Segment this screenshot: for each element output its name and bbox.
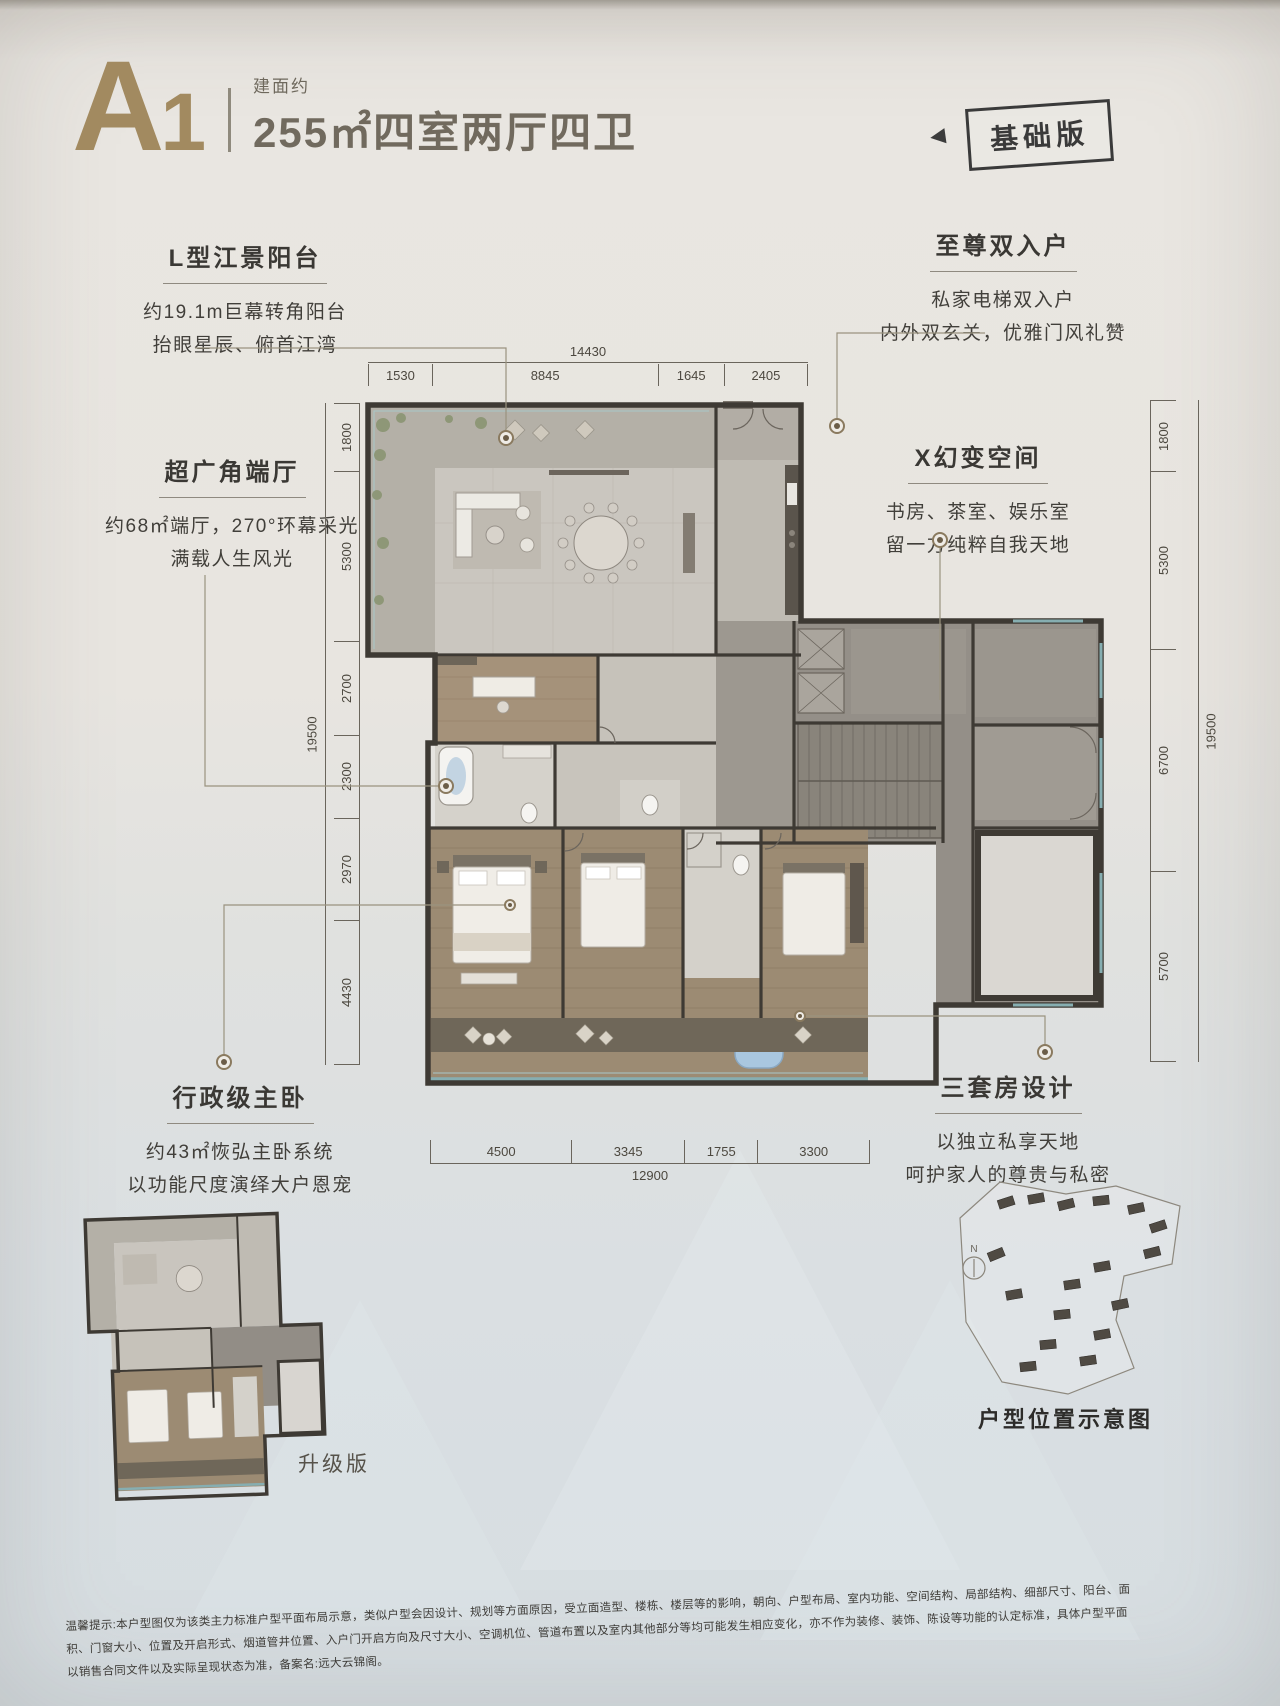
callout-balcony: L型江景阳台 约19.1m巨幕转角阳台 抬眼星辰、俯首江湾 xyxy=(100,238,390,363)
version-badge-label: 基础版 xyxy=(965,99,1114,171)
callout-master: 行政级主卧 约43㎡恢弘主卧系统 以功能尺度演绎大户恩宠 xyxy=(75,1078,405,1203)
floor-plan xyxy=(353,393,1113,1093)
header-area: 建面约 255㎡四室两厅四卫 xyxy=(253,72,637,162)
kitchen-entry xyxy=(716,401,801,655)
dim-segment: 8845 xyxy=(432,364,658,386)
dim-top-segments: 1530 8845 1645 2405 xyxy=(368,364,808,386)
study-room xyxy=(435,655,598,743)
dim-segment: 4500 xyxy=(430,1140,571,1163)
dim-segment: 1800 xyxy=(1151,400,1176,471)
x-room-a xyxy=(851,629,966,714)
dim-segment: 5300 xyxy=(1151,471,1176,649)
callout-line: 以独立私享天地 xyxy=(858,1126,1158,1159)
bedroom-band xyxy=(428,828,868,1083)
dim-right-total: 19500 xyxy=(1198,400,1224,1062)
upgrade-plan-label: 升级版 xyxy=(298,1448,370,1478)
callout-line: 约19.1m巨幕转角阳台 xyxy=(100,296,390,329)
callout-title: 至尊双入户 xyxy=(930,226,1077,272)
site-map: N xyxy=(948,1172,1188,1402)
dim-segment: 3345 xyxy=(571,1140,684,1163)
dim-top-total: 14430 xyxy=(368,344,808,363)
dim-segment: 2405 xyxy=(724,364,808,386)
dim-segment: 1530 xyxy=(368,364,432,386)
dim-segment: 6700 xyxy=(1151,649,1176,870)
callout-title: 行政级主卧 xyxy=(167,1078,314,1124)
area-spec: 255㎡四室两厅四卫 xyxy=(253,99,637,160)
callout-line: 以功能尺度演绎大户恩宠 xyxy=(75,1169,405,1202)
area-prefix: 建面约 xyxy=(253,72,637,97)
arrow-left-icon: ◀ xyxy=(928,122,947,149)
header-divider xyxy=(228,88,231,152)
living-dining xyxy=(435,468,716,655)
dim-bottom-segments: 4500 3345 1755 3300 xyxy=(430,1140,870,1164)
dim-left-total: 19500 xyxy=(300,403,326,1065)
callout-title: 超广角端厅 xyxy=(159,452,306,498)
unit-code: A1 xyxy=(72,52,202,162)
dim-segment: 1755 xyxy=(684,1140,757,1163)
compass-n-label: N xyxy=(970,1244,977,1255)
callout-line: 抬眼星辰、俯首江湾 xyxy=(100,329,390,362)
stairs xyxy=(798,723,943,838)
dim-segment: 1645 xyxy=(658,364,724,386)
right-mid-room xyxy=(975,725,1096,820)
callout-line: 内外双玄关，优雅门风礼赞 xyxy=(848,317,1158,350)
right-bottom-room xyxy=(978,833,1096,998)
brochure-page: A1 建面约 255㎡四室两厅四卫 ◀ 基础版 L型江景阳台 约19.1m巨幕转… xyxy=(0,0,1280,1706)
callout-line: 私家电梯双入户 xyxy=(848,284,1158,317)
dim-right-segments: 1800 5300 6700 5700 xyxy=(1150,400,1176,1062)
bathroom-1 xyxy=(435,743,555,828)
header: A1 建面约 255㎡四室两厅四卫 xyxy=(72,52,637,162)
x-room-b xyxy=(975,629,1096,717)
dim-segment: 3300 xyxy=(757,1140,870,1163)
version-badge: ◀ 基础版 xyxy=(930,104,1112,166)
callout-line: 约43㎡恢弘主卧系统 xyxy=(75,1136,405,1169)
bedroom-3 xyxy=(783,863,864,955)
bathroom-2 xyxy=(620,780,680,828)
site-map-label: 户型位置示意图 xyxy=(978,1402,1153,1434)
callout-title: L型江景阳台 xyxy=(163,238,328,284)
bedroom-2 xyxy=(581,853,645,947)
dim-bottom-total: 12900 xyxy=(430,1168,870,1183)
dim-segment: 5700 xyxy=(1151,871,1176,1063)
callout-entry: 至尊双入户 私家电梯双入户 内外双玄关，优雅门风礼赞 xyxy=(848,226,1158,351)
